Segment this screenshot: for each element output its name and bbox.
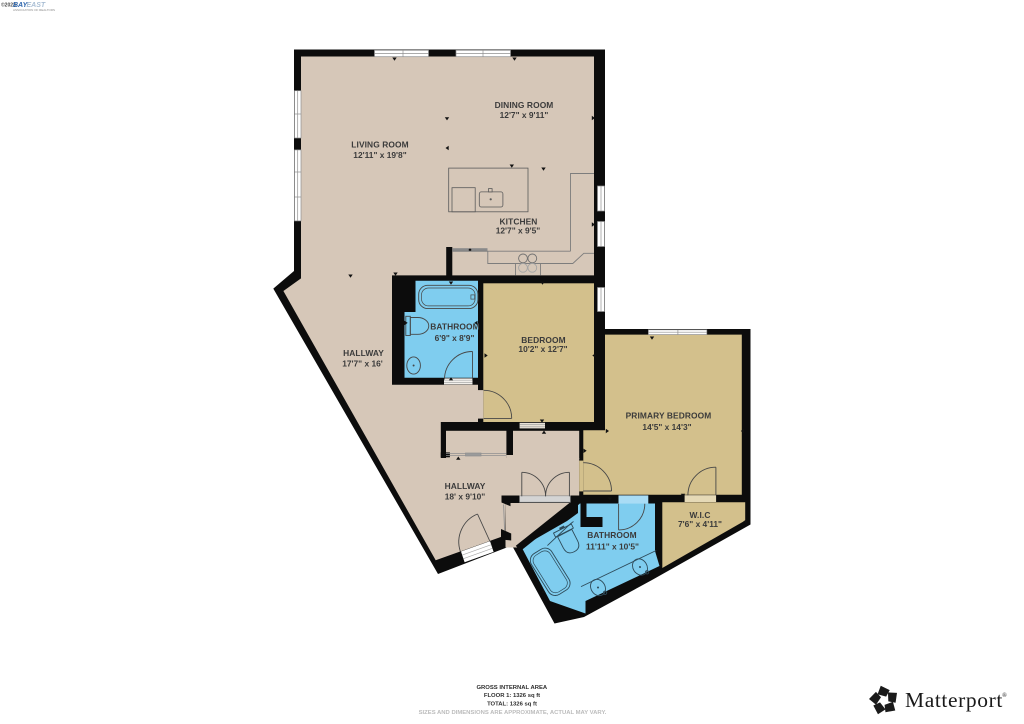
svg-text:ASSOCIATION OF REALTORS: ASSOCIATION OF REALTORS xyxy=(13,8,55,12)
svg-text:12'11" x 19'8": 12'11" x 19'8" xyxy=(353,150,406,160)
svg-text:SIZES AND DIMENSIONS ARE APPRO: SIZES AND DIMENSIONS ARE APPROXIMATE, AC… xyxy=(419,710,607,716)
svg-text:PRIMARY BEDROOM: PRIMARY BEDROOM xyxy=(626,411,712,421)
svg-text:TOTAL: 1326 sq ft: TOTAL: 1326 sq ft xyxy=(487,701,537,707)
svg-text:6'9" x 8'9": 6'9" x 8'9" xyxy=(435,333,475,343)
svg-text:BATHROOM: BATHROOM xyxy=(430,322,480,332)
svg-text:FLOOR 1: 1326 sq ft: FLOOR 1: 1326 sq ft xyxy=(484,693,540,699)
svg-text:GROSS INTERNAL AREA: GROSS INTERNAL AREA xyxy=(476,685,547,691)
svg-text:BATHROOM: BATHROOM xyxy=(587,530,637,540)
svg-text:17'7" x 16': 17'7" x 16' xyxy=(342,359,383,369)
svg-text:®: ® xyxy=(1002,692,1007,699)
svg-text:11'11" x 10'5": 11'11" x 10'5" xyxy=(586,542,639,552)
svg-text:12'7" x 9'5": 12'7" x 9'5" xyxy=(496,226,541,236)
svg-text:10'2" x 12'7": 10'2" x 12'7" xyxy=(518,344,567,354)
svg-text:18' x 9'10": 18' x 9'10" xyxy=(445,492,486,502)
svg-text:7'6" x 4'11": 7'6" x 4'11" xyxy=(678,519,722,529)
svg-text:DINING ROOM: DINING ROOM xyxy=(495,100,554,110)
svg-text:Matterport: Matterport xyxy=(905,688,1003,712)
svg-text:HALLWAY: HALLWAY xyxy=(445,481,486,491)
svg-text:14'5" x 14'3": 14'5" x 14'3" xyxy=(642,422,691,432)
svg-text:12'7" x 9'11": 12'7" x 9'11" xyxy=(500,110,549,120)
svg-text:LIVING ROOM: LIVING ROOM xyxy=(351,139,408,149)
svg-text:HALLWAY: HALLWAY xyxy=(343,348,384,358)
